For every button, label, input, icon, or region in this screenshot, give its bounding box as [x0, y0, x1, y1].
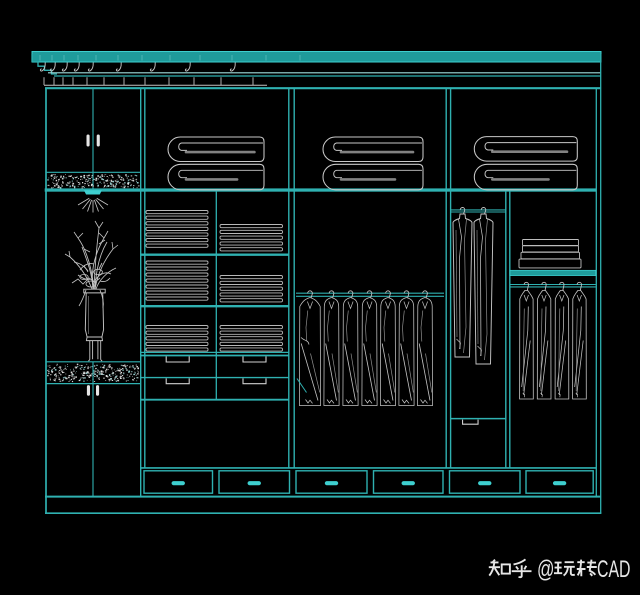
svg-text:@: @: [537, 556, 555, 583]
svg-text:CAD: CAD: [597, 556, 631, 583]
